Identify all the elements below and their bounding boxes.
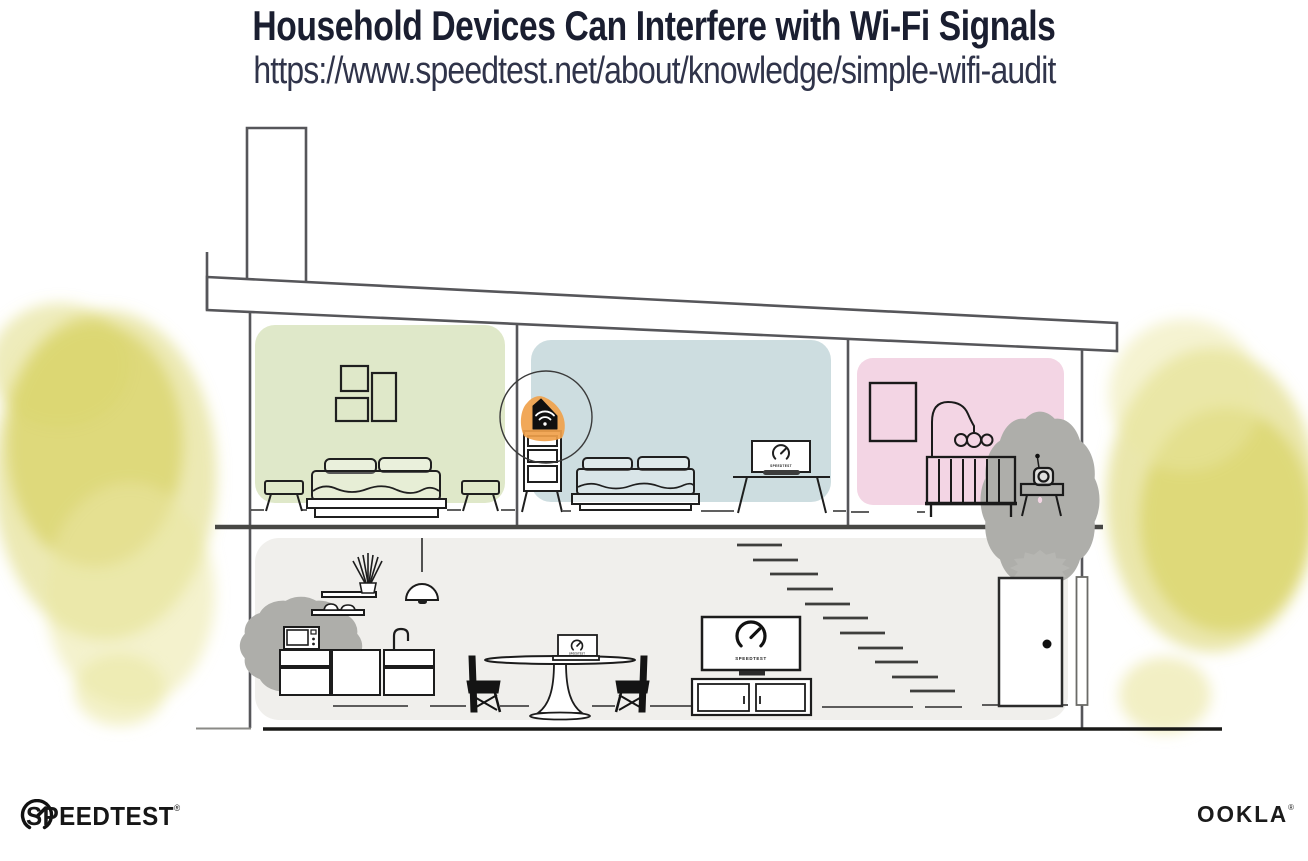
downspout-pipe bbox=[1077, 577, 1088, 705]
speedtest-trademark: ® bbox=[174, 803, 181, 813]
speedtest-logo-text: SPEEDTEST® bbox=[26, 801, 181, 832]
bedroom-laptop-label: SPEEDTEST bbox=[770, 464, 792, 468]
watercolor-foliage-right bbox=[1106, 319, 1308, 733]
ookla-trademark: ® bbox=[1288, 803, 1294, 812]
tv bbox=[702, 617, 800, 676]
bed-green bbox=[307, 458, 446, 517]
microwave bbox=[284, 627, 319, 649]
chimney bbox=[247, 128, 306, 283]
entry-door bbox=[999, 578, 1062, 706]
infographic-canvas: { "header": { "title": "Household Device… bbox=[0, 0, 1308, 861]
ookla-logo: OOKLA® bbox=[1195, 801, 1294, 828]
media-console bbox=[692, 679, 811, 715]
dining-laptop-label: SPEEDTEST bbox=[569, 653, 585, 656]
tv-screen-label: SPEEDTEST bbox=[735, 656, 767, 661]
ookla-logo-text: OOKLA® bbox=[1197, 801, 1294, 828]
house-illustration: SPEEDTEST bbox=[0, 0, 1308, 861]
dining-laptop bbox=[553, 635, 599, 660]
watercolor-foliage-left bbox=[0, 303, 217, 726]
speedtest-logo: SPEEDTEST® bbox=[20, 799, 192, 833]
door-knob bbox=[1043, 640, 1052, 649]
